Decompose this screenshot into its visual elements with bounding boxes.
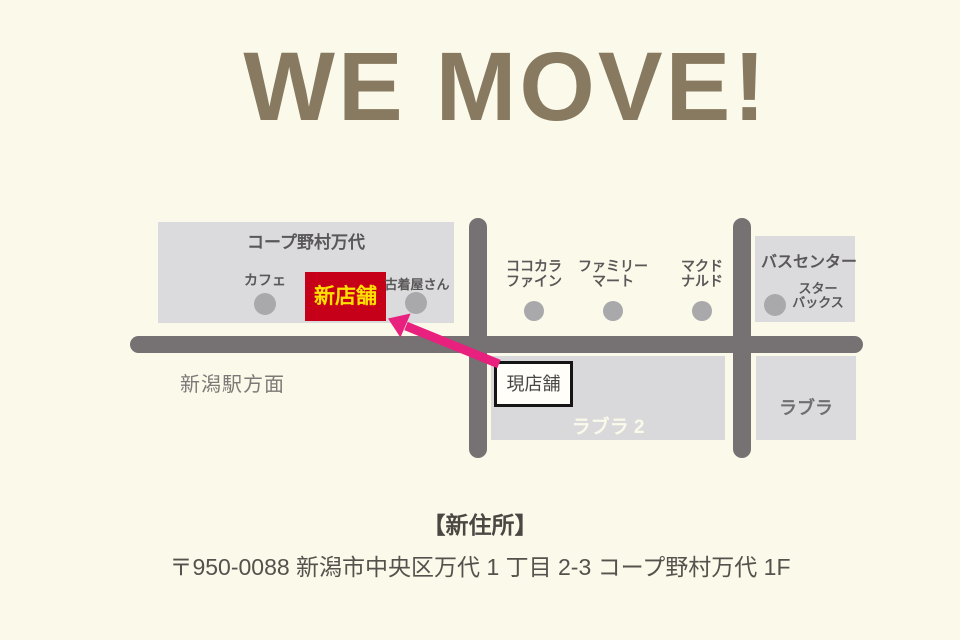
bus-center-label: バスセンター — [761, 248, 857, 272]
starbucks-dot-icon — [764, 294, 786, 316]
shop-label-line1: ファミリー — [578, 258, 648, 274]
move-notice-flyer: WE MOVE! コープ野村万代 カフェ 新店舗 古着屋さん ココカラ ファイン… — [0, 0, 960, 640]
shop-familymart-label: ファミリー マート — [563, 259, 663, 289]
used-clothing-dot-icon — [405, 292, 427, 314]
shop-label-line1: ココカラ — [506, 258, 562, 274]
labra-label: ラブラ — [756, 394, 856, 420]
current-shop-marker: 現店舗 — [494, 361, 573, 407]
page-title: WE MOVE! — [0, 34, 960, 141]
used-clothing-label: 古着屋さん — [378, 274, 456, 293]
shop-mcdonalds-label: マクド ナルド — [652, 259, 752, 289]
starbucks-label-line2: バックス — [792, 295, 844, 310]
new-address-heading: 【新住所】 — [0, 506, 960, 540]
building-bus-center: バスセンター スター バックス — [755, 236, 855, 322]
road-horizontal-main — [130, 336, 863, 353]
starbucks-label: スター バックス — [781, 282, 855, 310]
cafe-label: カフェ — [232, 270, 298, 290]
shop-label-line2: ナルド — [681, 273, 723, 289]
building-labra: ラブラ — [756, 356, 856, 440]
shop-label-line2: ファイン — [506, 273, 562, 289]
shop-kokokara-dot-icon — [524, 301, 544, 321]
shop-label-line2: マート — [592, 273, 634, 289]
new-address-text: 〒950-0088 新潟市中央区万代 1 丁目 2-3 コープ野村万代 1F — [0, 548, 960, 582]
starbucks-label-line1: スター — [798, 281, 837, 296]
labra2-label: ラブラ 2 — [491, 412, 725, 439]
shop-label-line1: マクド — [681, 258, 723, 274]
building-name-label: コープ野村万代 — [158, 228, 454, 253]
new-shop-marker: 新店舗 — [305, 272, 386, 321]
cafe-dot-icon — [254, 293, 276, 315]
shop-familymart-dot-icon — [603, 301, 623, 321]
building-coop-nomura-bandai: コープ野村万代 カフェ 新店舗 古着屋さん — [158, 222, 454, 323]
shop-mcdonalds-dot-icon — [692, 301, 712, 321]
station-direction-label: 新潟駅方面 — [180, 368, 285, 397]
